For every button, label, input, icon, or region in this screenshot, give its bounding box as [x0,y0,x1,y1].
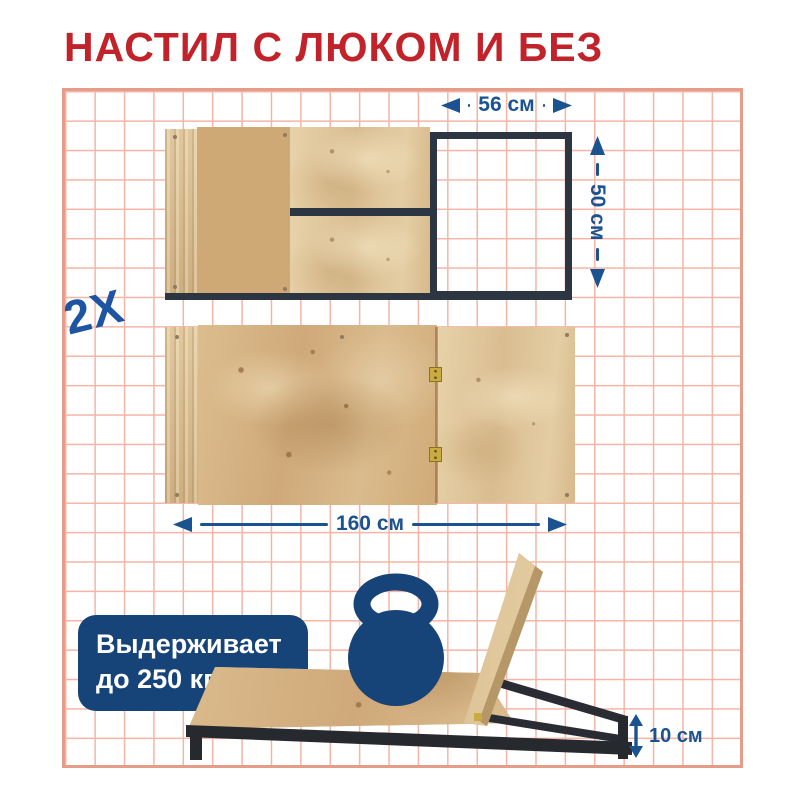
sheet-seam [435,327,438,503]
dim-hatch-depth: 50 см [585,136,609,288]
cross-bar [290,208,430,216]
dim-deck-length: 160 см [173,512,567,536]
dim-label: 10 см [649,725,703,748]
dim-label: 160 см [336,512,404,536]
arrow-right-icon [553,98,572,113]
dim-label: 56 см [478,93,534,117]
dim-line [596,248,599,261]
arrow-updown-icon [629,714,643,758]
sheet-edge-strip [165,327,198,503]
infographic-canvas: НАСТИЛ С ЛЮКОМ И БЕЗ 56 см 50 см 2X [0,0,800,800]
dim-line [596,163,599,176]
dim-line [412,523,540,526]
arrow-down-icon [590,269,605,288]
dim-line [468,104,470,107]
hinge-bottom [429,447,442,462]
sheet-main-panel [198,325,437,505]
plywood-edge-strip [165,129,197,295]
hatch-frame [430,132,572,298]
page-title: НАСТИЛ С ЛЮКОМ И БЕЗ [64,24,603,71]
screw-dots [175,335,179,339]
plywood-panel-left [197,127,290,295]
plywood-panel-upper [290,127,430,208]
hinge-top [429,367,442,382]
plywood-sheet [165,325,575,505]
screw-dots [173,135,177,139]
dim-line [543,104,545,107]
dim-frame-height: 10 см [629,714,703,758]
kettlebell-icon [344,566,448,708]
plywood-panel-lower [290,216,430,295]
deck-top-view [165,127,572,300]
dim-label: 50 см [585,184,609,240]
arrow-up-icon [590,136,605,155]
sheet-hatch-panel [437,327,575,503]
arrow-left-icon [173,517,192,532]
arrow-right-icon [548,517,567,532]
arrow-left-icon [441,98,460,113]
dim-hatch-width: 56 см [441,93,572,117]
dim-line [200,523,328,526]
